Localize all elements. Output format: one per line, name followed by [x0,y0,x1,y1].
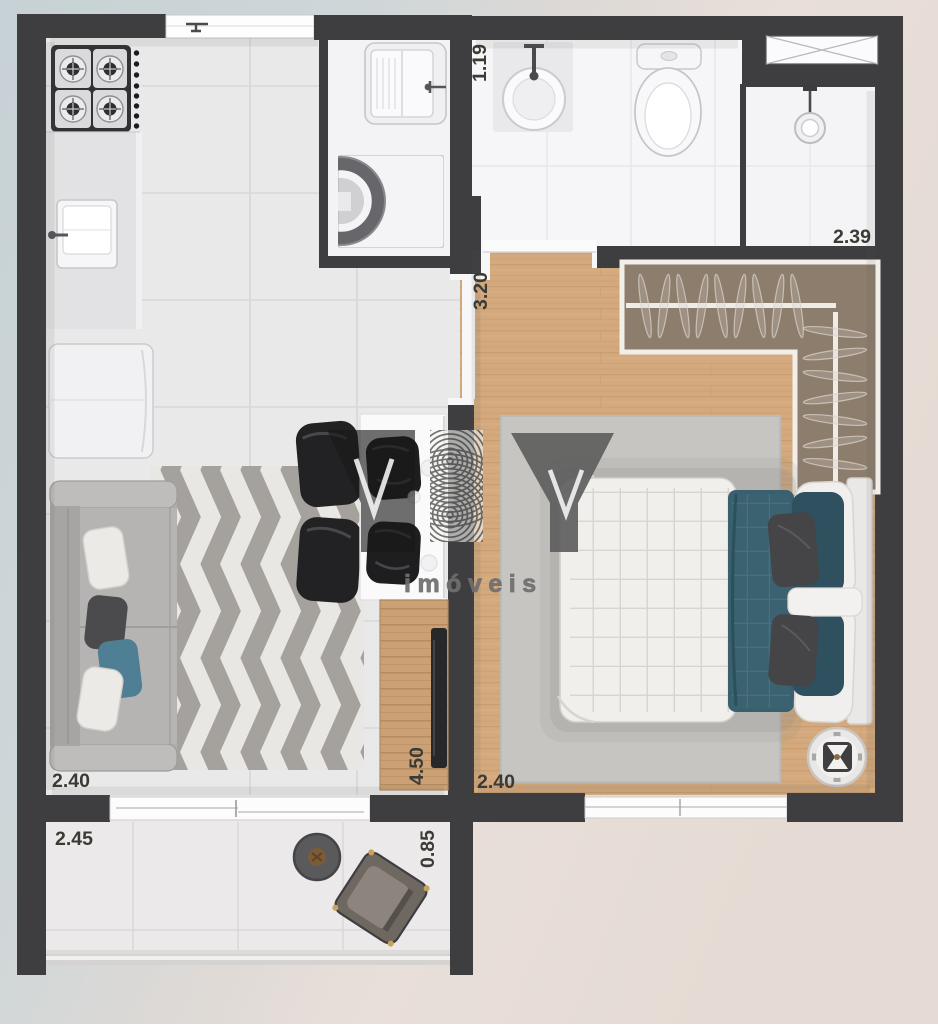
svg-text:3.20: 3.20 [470,272,492,310]
svg-text:2.45: 2.45 [55,828,93,850]
svg-text:0.85: 0.85 [417,830,439,868]
svg-text:2.39: 2.39 [833,226,871,248]
svg-text:imóveis: imóveis [404,570,543,598]
svg-text:2.40: 2.40 [477,771,515,793]
svg-text:4.50: 4.50 [406,747,428,785]
svg-text:1.19: 1.19 [469,44,491,82]
svg-text:2.40: 2.40 [52,770,90,792]
